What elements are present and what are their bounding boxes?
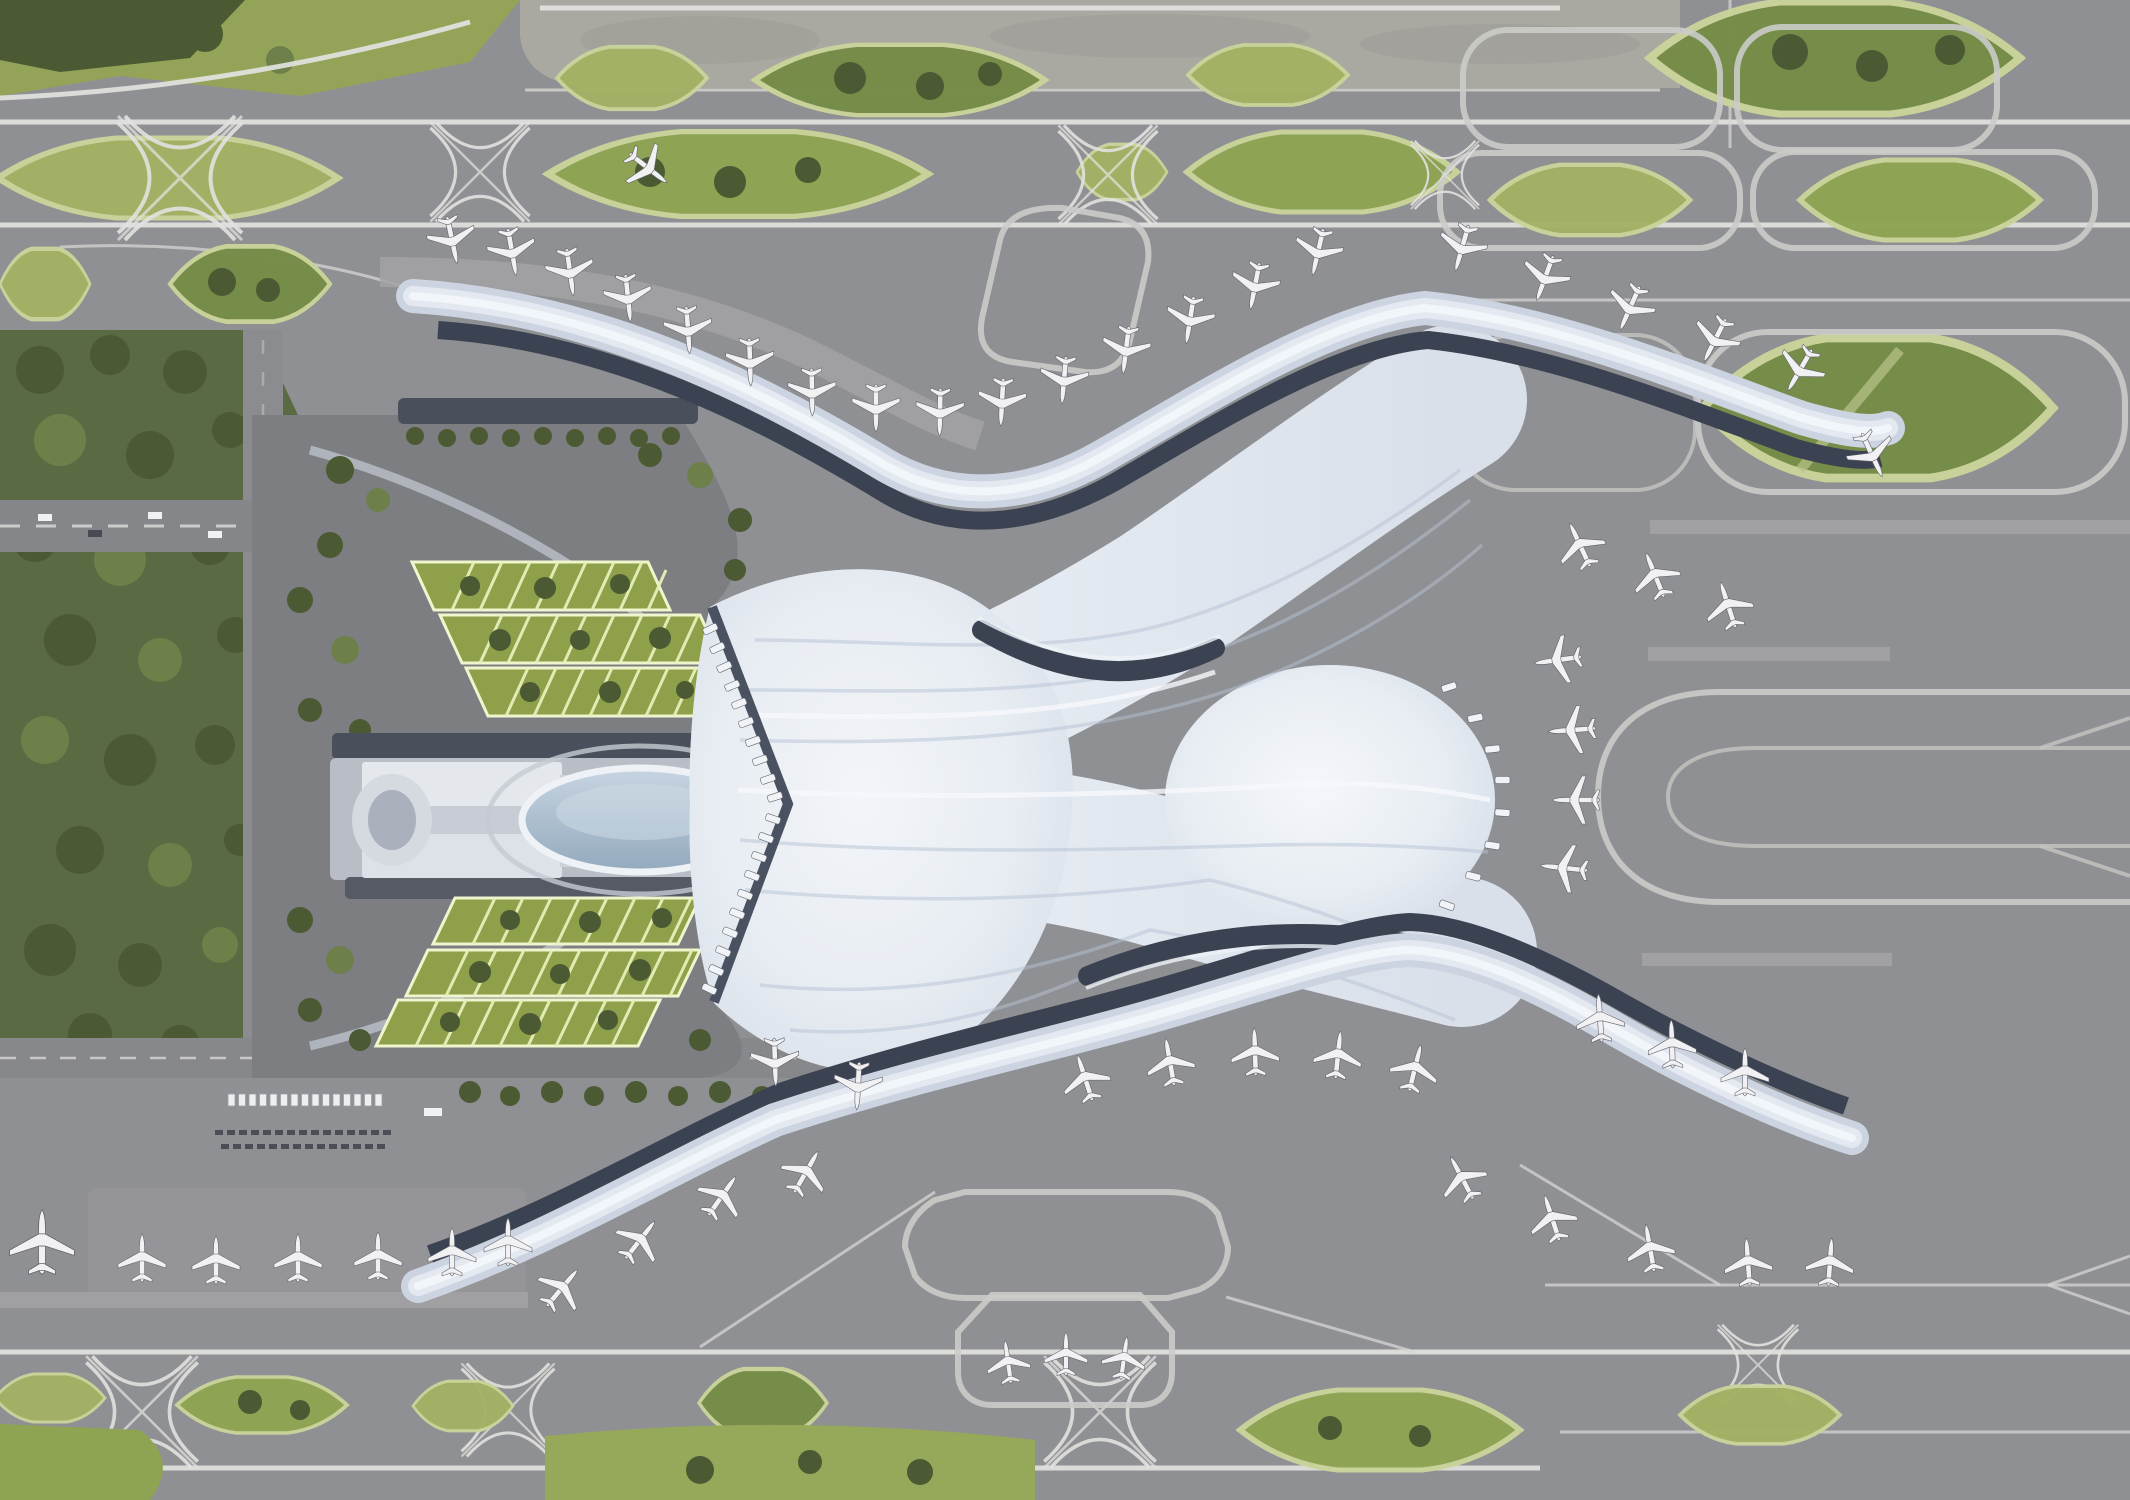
aerial-render-stage: Airport terminal master plan — aerial re… (0, 0, 2130, 1500)
terminal-east-lobe (1165, 665, 1495, 935)
airport-aerial-rendering: Airport terminal master plan — aerial re… (0, 0, 2130, 1500)
bus (424, 1108, 442, 1116)
